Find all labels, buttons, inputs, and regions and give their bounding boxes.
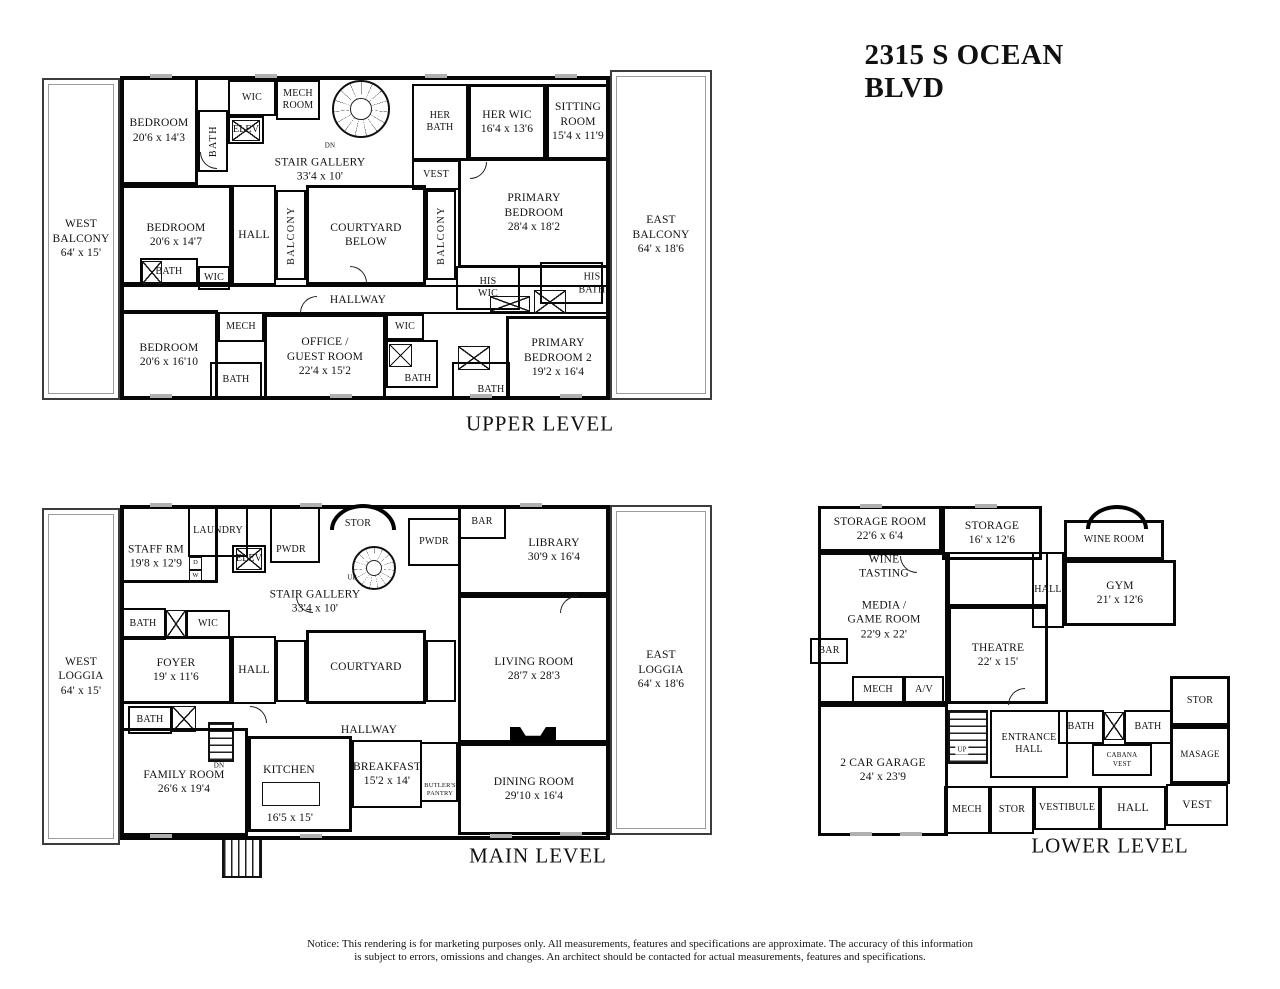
window-mark	[560, 832, 582, 836]
room-label: VESTIBULE	[1039, 802, 1095, 815]
room-label: 2 CAR GARAGE 24' x 23'9	[833, 756, 933, 785]
lower-hall: HALL	[1100, 786, 1166, 830]
stair-dn-label: DN	[325, 142, 336, 151]
lower-stor-right: STOR	[1170, 676, 1230, 726]
floor-plan-page: 2315 S OCEAN BLVD WEST BALCONY 64' x 15'…	[0, 0, 1280, 989]
main-hallway-label: HALLWAY	[341, 723, 397, 737]
window-mark	[860, 504, 882, 508]
main-exterior-stairs	[222, 840, 262, 878]
room-label: HER WIC 16'4 x 13'6	[472, 108, 542, 137]
upper-courtyard-below: COURTYARD BELOW	[306, 185, 426, 285]
room-label: HALL	[238, 663, 269, 677]
main-pwdr-right: PWDR	[408, 518, 460, 566]
lower-theatre: THEATRE 22' x 15'	[948, 606, 1048, 704]
upper-wic-3: WIC	[386, 314, 424, 340]
window-mark	[490, 834, 512, 838]
upper-west-balcony: WEST BALCONY 64' x 15'	[42, 78, 120, 400]
room-label: BAR	[818, 645, 839, 658]
main-family-room: FAMILY ROOM 26'6 x 19'4	[120, 728, 248, 836]
room-label: EAST LOGGIA 64' x 18'6	[631, 648, 691, 691]
closet-xbox	[458, 346, 490, 370]
room-label: MECH	[863, 684, 893, 697]
room-label: LIVING ROOM 28'7 x 28'3	[484, 655, 584, 684]
main-wic: WIC	[186, 610, 230, 638]
lower-bar: BAR	[810, 638, 848, 664]
upper-east-balcony: EAST BALCONY 64' x 18'6	[610, 70, 712, 400]
room-label: HALL	[1117, 801, 1148, 815]
upper-bath-4-label: BATH	[405, 373, 432, 386]
lower-mech: MECH	[852, 676, 904, 704]
main-portico-right	[426, 640, 456, 702]
stair-up-label: UP	[955, 746, 968, 755]
room-label: BATH	[1068, 721, 1095, 734]
lower-storage-room: STORAGE ROOM 22'6 x 6'4	[818, 506, 942, 552]
lower-entrance-hall: ENTRANCE HALL	[990, 710, 1068, 778]
room-label: BALCONY	[436, 206, 447, 265]
room-label: BEDROOM 20'6 x 14'3	[130, 116, 189, 145]
upper-her-bath: HER BATH	[412, 84, 468, 160]
main-foyer: FOYER 19' x 11'6	[120, 636, 232, 704]
room-label: PRIMARY BEDROOM 28'4 x 18'2	[496, 191, 572, 234]
room-label: DINING ROOM 29'10 x 16'4	[479, 775, 589, 804]
room-label: EAST BALCONY 64' x 18'6	[626, 213, 696, 256]
main-level-title: MAIN LEVEL	[469, 844, 607, 869]
room-label: BEDROOM 20'6 x 16'10	[140, 341, 199, 370]
room-label: STORAGE 16' x 12'6	[952, 519, 1032, 548]
room-label: BREAKFAST 15'2 x 14'	[353, 760, 421, 789]
upper-mech-room: MECH ROOM	[276, 80, 320, 120]
room-label: ENTRANCE HALL	[999, 732, 1059, 757]
room-label: A/V	[915, 684, 933, 697]
room-label: STOR	[1187, 695, 1213, 708]
window-mark	[520, 503, 542, 507]
room-label: HALL	[1034, 584, 1061, 597]
room-label: LIBRARY 30'9 x 16'4	[514, 536, 594, 565]
window-mark	[255, 74, 277, 78]
upper-level-title: UPPER LEVEL	[466, 412, 614, 437]
upper-office-guest-room: OFFICE / GUEST ROOM 22'4 x 15'2	[264, 314, 386, 400]
main-staff-room-label: STAFF RM 19'8 x 12'9	[116, 543, 196, 572]
window-mark	[555, 74, 577, 78]
room-label: OFFICE / GUEST ROOM 22'4 x 15'2	[282, 335, 368, 378]
room-label: THEATRE 22' x 15'	[963, 641, 1033, 670]
window-mark	[425, 74, 447, 78]
main-portico-left	[276, 640, 306, 702]
lower-vestibule: VESTIBULE	[1034, 786, 1100, 830]
window-mark	[330, 394, 352, 398]
closet-xbox	[166, 610, 186, 638]
room-label: PRIMARY BEDROOM 2 19'2 x 16'4	[514, 336, 602, 379]
room-label: LAUNDRY	[193, 525, 243, 538]
kitchen-island	[262, 782, 320, 806]
closet-xbox	[142, 261, 162, 284]
room-label: BALCONY	[286, 206, 297, 265]
upper-balcony-left: BALCONY	[276, 190, 306, 280]
room-label: VEST	[1182, 798, 1212, 812]
room-label: HER BATH	[423, 110, 457, 135]
main-courtyard: COURTYARD	[306, 630, 426, 704]
room-label: MECH	[952, 804, 982, 817]
upper-primary-bedroom-2: PRIMARY BEDROOM 2 19'2 x 16'4	[506, 316, 610, 400]
room-label: BATH	[130, 618, 157, 631]
laundry-washer-box: W	[189, 570, 202, 583]
page-title: 2315 S OCEAN BLVD	[865, 39, 1142, 105]
laundry-dryer-box: D	[189, 557, 202, 570]
main-east-loggia: EAST LOGGIA 64' x 18'6	[610, 505, 712, 835]
room-label: WIC	[395, 321, 415, 334]
upper-bedroom-3: BEDROOM 20'6 x 16'10	[120, 310, 218, 400]
closet-xbox	[1104, 712, 1124, 740]
window-mark	[560, 394, 582, 398]
upper-stair-gallery-label: STAIR GALLERY 33'4 x 10'	[275, 156, 366, 185]
closet-xbox	[236, 548, 262, 570]
room-label: VEST	[423, 169, 449, 182]
upper-bath-3: BATH	[210, 362, 262, 398]
lower-cabana-vest: CABANA VEST	[1092, 744, 1152, 776]
window-mark	[470, 394, 492, 398]
room-label: WINE ROOM	[1084, 534, 1144, 547]
upper-hall: HALL	[232, 185, 276, 285]
main-living-room: LIVING ROOM 28'7 x 28'3	[458, 595, 610, 743]
room-label: FAMILY ROOM 26'6 x 19'4	[143, 768, 224, 797]
main-breakfast: BREAKFAST 15'2 x 14'	[352, 740, 422, 808]
window-mark	[150, 503, 172, 507]
window-mark	[300, 503, 322, 507]
window-mark	[150, 74, 172, 78]
main-stair-gallery-label: STAIR GALLERY 33'4 x 10'	[270, 588, 361, 617]
room-label: PWDR	[419, 536, 449, 549]
room-label: WEST BALCONY 64' x 15'	[48, 217, 114, 260]
closet-xbox	[534, 290, 566, 314]
main-dining-room: DINING ROOM 29'10 x 16'4	[458, 743, 610, 835]
room-label: BATH	[1135, 721, 1162, 734]
upper-spiral-stair	[332, 80, 390, 138]
lower-vest: VEST	[1166, 784, 1228, 826]
room-label: HALL	[238, 228, 269, 242]
stair-up-label: UP	[347, 574, 356, 583]
upper-balcony-right: BALCONY	[426, 190, 456, 280]
room-label: BEDROOM 20'6 x 14'7	[147, 221, 206, 250]
upper-bedroom-1: BEDROOM 20'6 x 14'3	[120, 76, 198, 185]
room-label: CABANA VEST	[1102, 751, 1142, 769]
window-mark	[975, 504, 997, 508]
main-west-loggia: WEST LOGGIA 64' x 15'	[42, 508, 120, 845]
closet-xbox	[490, 296, 530, 312]
main-kitchen-dims: 16'5 x 15'	[267, 811, 313, 825]
lower-garage: 2 CAR GARAGE 24' x 23'9	[818, 704, 948, 836]
room-label: BATH	[137, 714, 164, 727]
room-label: WIC	[198, 618, 218, 631]
lower-bath-left: BATH	[1058, 710, 1104, 744]
lower-gym: GYM 21' x 12'6	[1064, 560, 1176, 626]
main-spiral-stair	[352, 546, 396, 590]
upper-her-wic: HER WIC 16'4 x 13'6	[468, 84, 546, 160]
lower-stairs	[948, 710, 988, 764]
room-label: MECH	[226, 321, 256, 334]
main-butlers-pantry-label: BUTLER'S PANTRY	[423, 782, 457, 798]
room-label: FOYER 19' x 11'6	[153, 656, 199, 685]
upper-sitting-room: SITTING ROOM 15'4 x 11'9	[546, 84, 610, 160]
lower-wine-room: WINE ROOM	[1064, 520, 1164, 560]
main-pwdr-left-label: PWDR	[276, 544, 306, 557]
window-mark	[300, 834, 322, 838]
room-label: MECH ROOM	[280, 88, 316, 113]
window-mark	[850, 832, 872, 836]
window-mark	[900, 832, 922, 836]
lower-bath-right: BATH	[1124, 710, 1172, 744]
notice-line-2: is subject to errors, omissions and chan…	[0, 951, 1280, 964]
window-mark	[150, 394, 172, 398]
room-label: COURTYARD BELOW	[323, 221, 409, 250]
closet-xbox	[389, 344, 412, 367]
upper-hallway-label: HALLWAY	[330, 293, 386, 307]
window-mark	[150, 834, 172, 838]
lower-masage: MASAGE	[1170, 726, 1230, 784]
lower-mech-2: MECH	[944, 786, 990, 834]
notice-line-1: Notice: This rendering is for marketing …	[0, 938, 1280, 951]
room-label: BATH	[223, 374, 250, 387]
room-label: WEST LOGGIA 64' x 15'	[51, 655, 111, 698]
room-label: WIC	[204, 272, 224, 285]
lower-media-game-label: MEDIA / GAME ROOM 22'9 x 22'	[843, 598, 925, 641]
main-kitchen-name: KITCHEN	[263, 763, 315, 777]
upper-mech-2: MECH	[218, 312, 264, 342]
room-label: WIC	[242, 92, 262, 105]
lower-av: A/V	[904, 676, 944, 704]
room-label: GYM 21' x 12'6	[1085, 579, 1155, 608]
upper-wic-top: WIC	[228, 80, 276, 116]
main-stor-label: STOR	[345, 518, 371, 531]
lower-stor-2: STOR	[990, 786, 1034, 834]
closet-xbox	[232, 120, 260, 141]
room-label: SITTING ROOM 15'4 x 11'9	[549, 100, 607, 143]
main-library: LIBRARY 30'9 x 16'4	[458, 505, 610, 595]
main-hall: HALL	[232, 636, 276, 704]
room-label: STORAGE ROOM 22'6 x 6'4	[825, 515, 935, 544]
room-label: STOR	[999, 804, 1025, 817]
room-label: COURTYARD	[330, 660, 401, 674]
lower-level-title: LOWER LEVEL	[1031, 834, 1188, 859]
room-label: MASAGE	[1180, 749, 1219, 760]
